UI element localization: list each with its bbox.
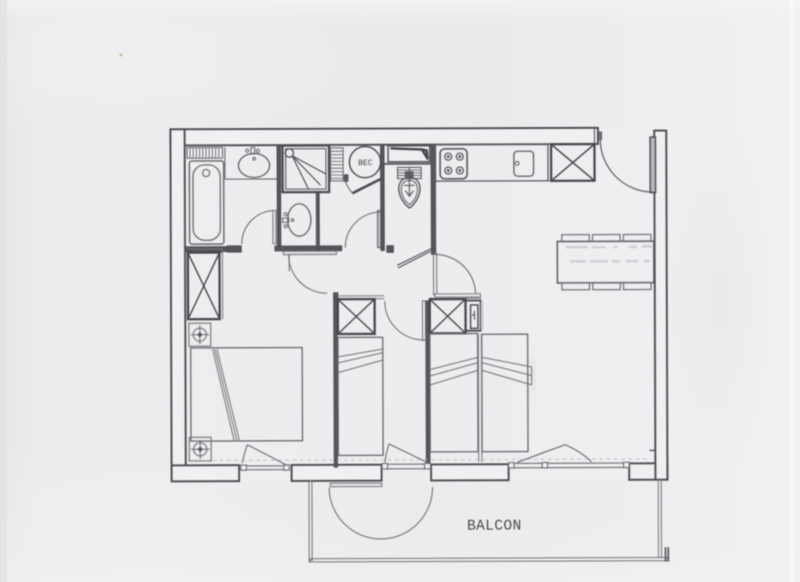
svg-text:BALCON: BALCON: [467, 519, 522, 535]
svg-text:BEC: BEC: [358, 159, 373, 168]
